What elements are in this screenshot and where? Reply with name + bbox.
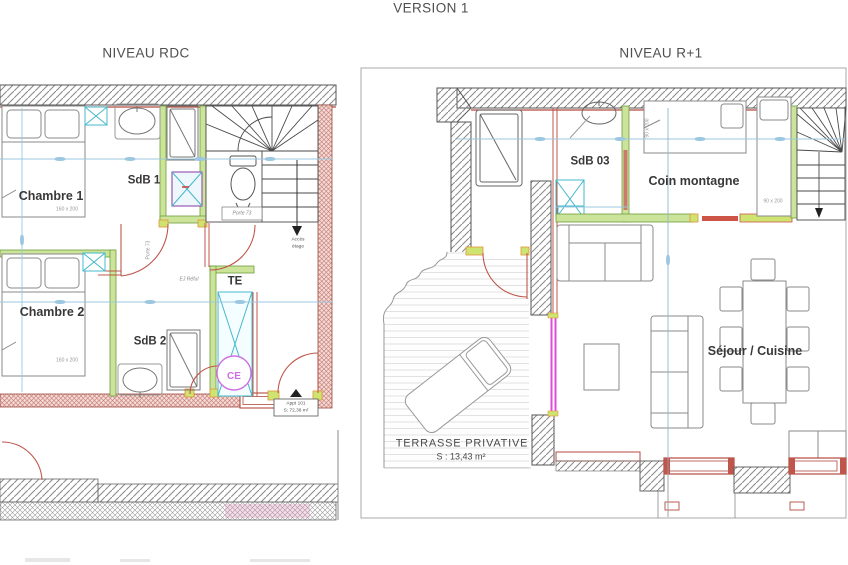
sdb03-fixtures <box>476 100 616 186</box>
rdc-plan-title: NIVEAU RDC <box>102 46 189 60</box>
label-porte-stairs: Porte 73 <box>233 212 252 217</box>
label-sejour-cuisine: Séjour / Cuisine <box>708 345 802 358</box>
label-sdb03: SdB 03 <box>571 156 610 168</box>
label-terrasse: TERRASSE PRIVATIVE <box>396 439 529 450</box>
plan-r1-drawing <box>361 68 846 518</box>
label-chambre1: Chambre 1 <box>19 190 84 203</box>
label-bed-size-v: 90 x 200 <box>646 118 651 137</box>
linen-closet <box>172 172 202 206</box>
label-sdb1: SdB 1 <box>128 175 161 187</box>
bottom-cutoff-marks <box>25 558 310 562</box>
label-chambre1-size: 160 x 200 <box>56 208 78 213</box>
bay-window-magenta <box>548 313 558 416</box>
label-appt: Appt 101 <box>286 403 305 408</box>
sofa-horizontal <box>557 225 653 281</box>
rdc-facade-bands <box>0 430 338 520</box>
label-te: TE <box>228 276 243 288</box>
label-sdb2: SdB 2 <box>134 336 167 348</box>
label-bed-size-h: 90 x 200 <box>763 200 782 205</box>
r1-plan-title: NIVEAU R+1 <box>619 46 702 60</box>
label-porte-chambre: Porte 73 <box>147 241 152 260</box>
label-chambre2: Chambre 2 <box>20 306 85 319</box>
floor-plan-sheet: VERSION 1 NIVEAU RDC NIVEAU R+1 Chambre … <box>0 0 848 565</box>
r1-bottom-wall <box>556 452 846 518</box>
label-acces-line2: étage <box>292 246 304 251</box>
version-title: VERSION 1 <box>393 1 469 15</box>
label-ce: CE <box>227 372 241 382</box>
label-appt-surface: S: 72,36 m² <box>284 410 309 415</box>
sofa-vertical <box>651 316 703 428</box>
label-terrasse-surface: S : 13,43 m² <box>436 453 485 462</box>
label-ej-reful: EJ Réful <box>180 278 199 283</box>
sdb1-fixtures <box>115 104 198 160</box>
coffee-table <box>584 344 619 390</box>
r1-staircase <box>797 108 846 220</box>
sdb03-closet <box>556 180 584 219</box>
label-acces-line1: Accès <box>291 239 304 244</box>
label-coin-montagne: Coin montagne <box>649 175 740 188</box>
label-chambre2-size: 160 x 200 <box>56 359 78 364</box>
plan-rdc-drawing <box>0 85 338 520</box>
kitchen-counter <box>789 431 846 458</box>
rdc-staircase <box>206 106 318 222</box>
dining-set <box>720 259 809 424</box>
floor-plan-drawing <box>0 0 848 565</box>
